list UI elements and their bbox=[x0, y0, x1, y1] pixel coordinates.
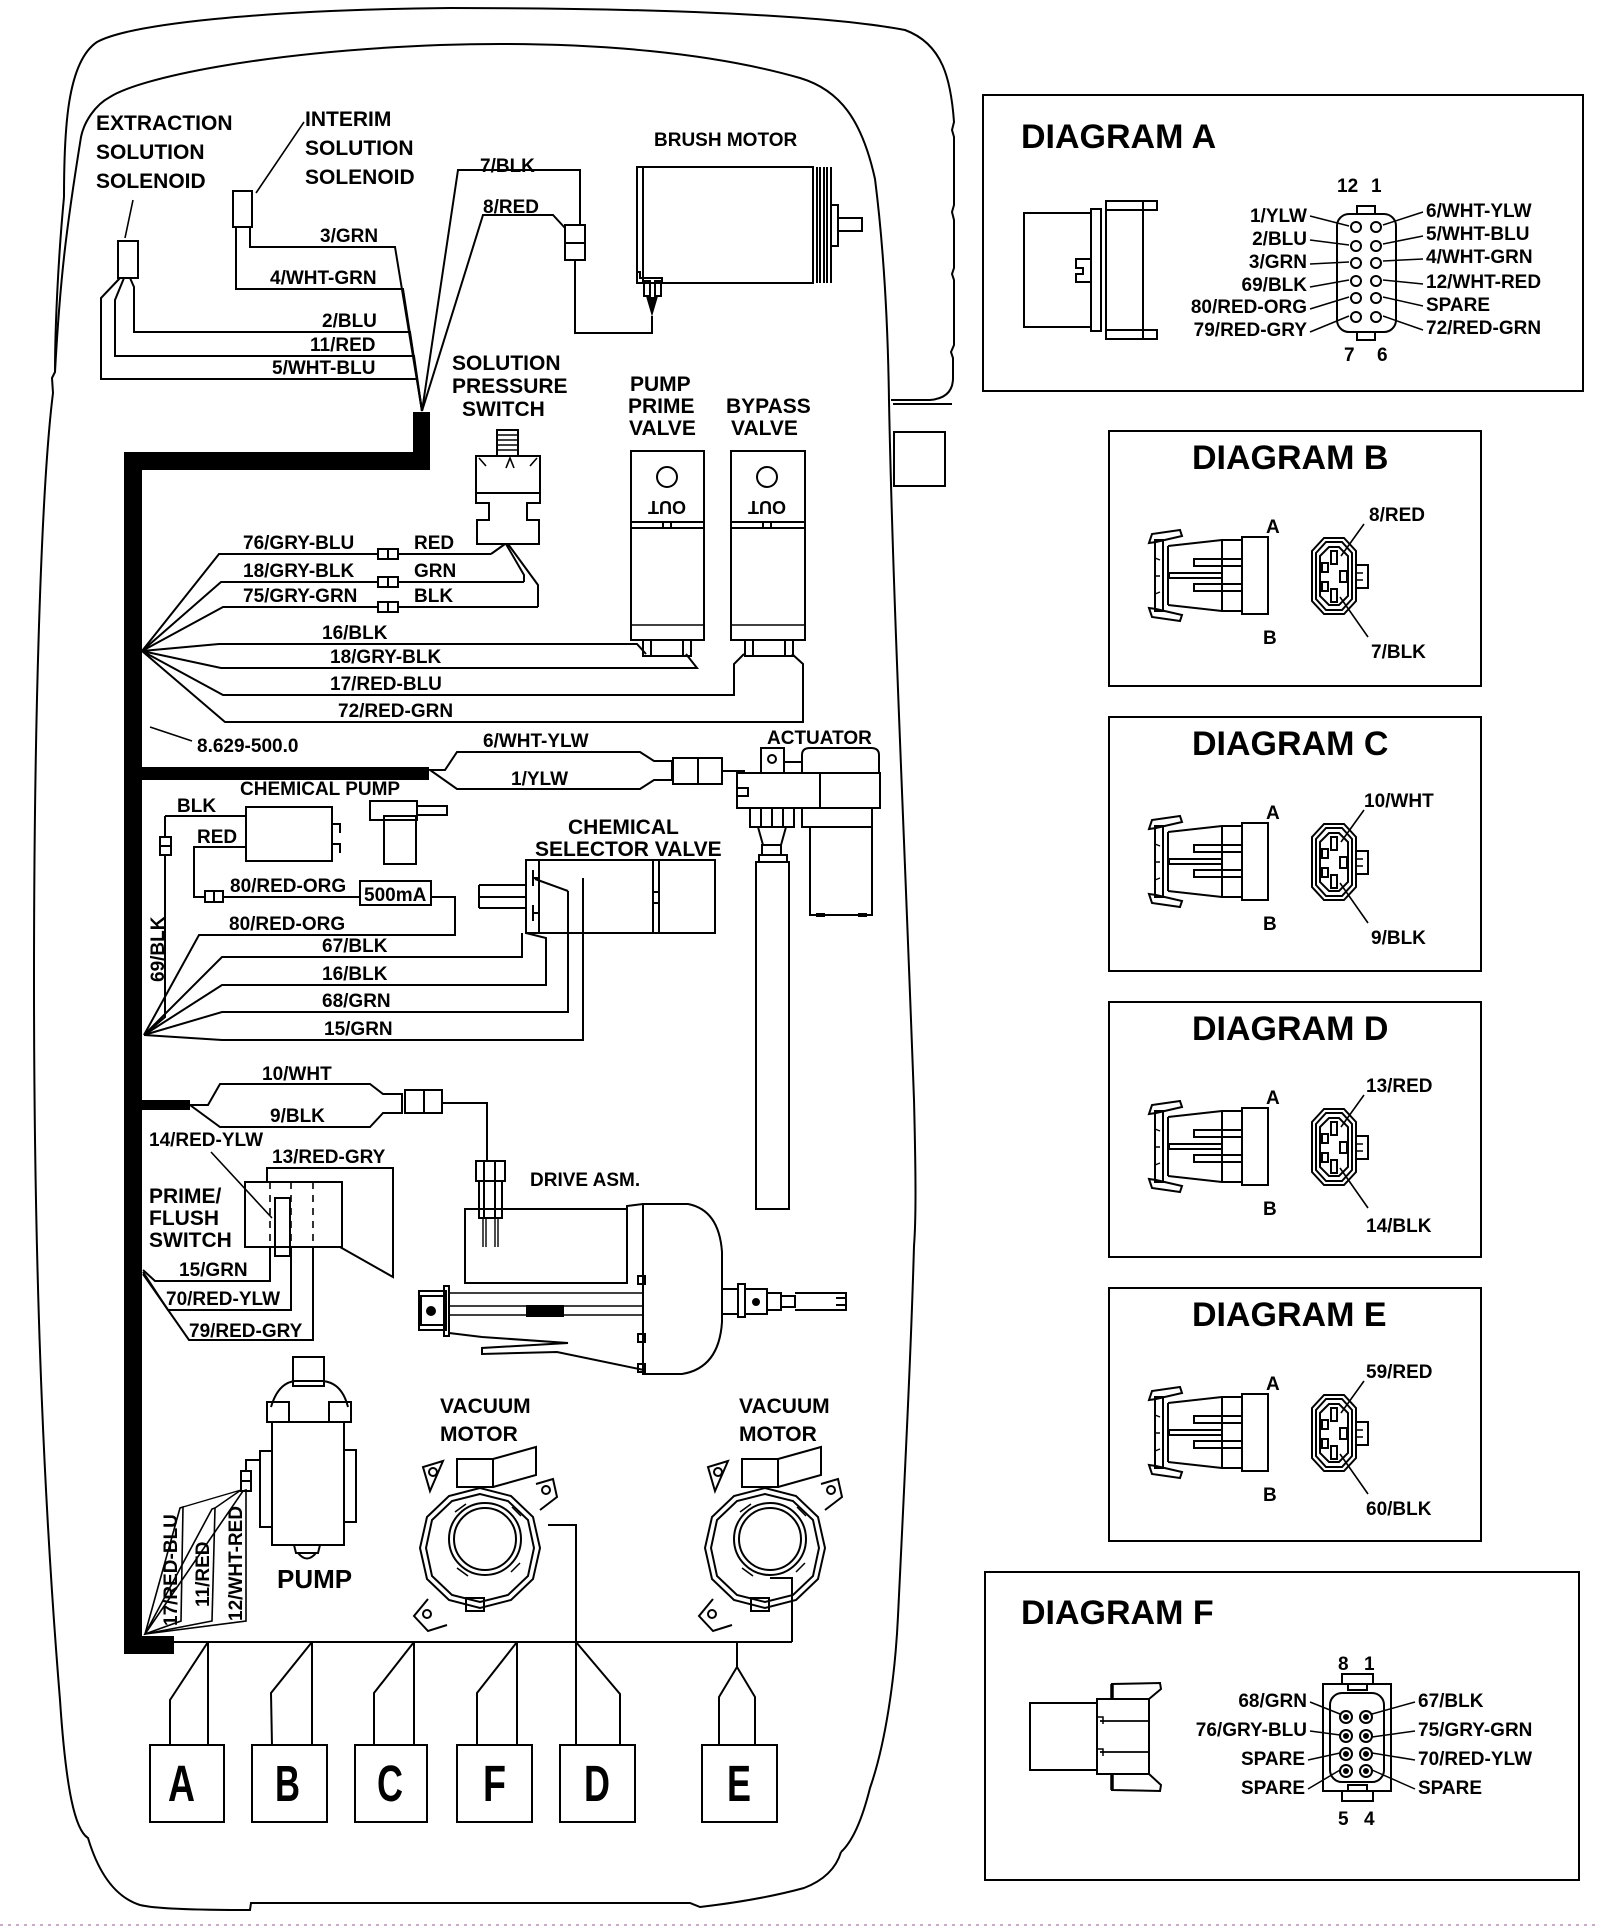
svg-text:DIAGRAM F: DIAGRAM F bbox=[1021, 1594, 1214, 1632]
svg-text:7: 7 bbox=[1344, 345, 1355, 366]
svg-text:E: E bbox=[727, 1755, 751, 1812]
svg-text:B: B bbox=[1263, 1485, 1277, 1506]
svg-text:1/YLW: 1/YLW bbox=[511, 769, 568, 790]
svg-text:B: B bbox=[1263, 628, 1277, 649]
svg-text:SPARE: SPARE bbox=[1418, 1778, 1482, 1799]
svg-text:7/BLK: 7/BLK bbox=[1371, 642, 1426, 663]
svg-text:5: 5 bbox=[1338, 1809, 1349, 1830]
svg-text:VACUUM: VACUUM bbox=[440, 1395, 531, 1418]
svg-text:11/RED: 11/RED bbox=[193, 1542, 214, 1607]
svg-text:14/BLK: 14/BLK bbox=[1366, 1216, 1432, 1237]
svg-text:DIAGRAM A: DIAGRAM A bbox=[1021, 118, 1216, 156]
svg-text:79/RED-GRY: 79/RED-GRY bbox=[189, 1321, 303, 1342]
svg-text:6/WHT-YLW: 6/WHT-YLW bbox=[1426, 201, 1532, 222]
svg-text:18/GRY-BLK: 18/GRY-BLK bbox=[243, 561, 354, 582]
svg-text:BLK: BLK bbox=[177, 796, 216, 817]
svg-text:DIAGRAM D: DIAGRAM D bbox=[1192, 1010, 1388, 1048]
svg-text:69/BLK: 69/BLK bbox=[148, 916, 169, 982]
svg-text:69/BLK: 69/BLK bbox=[1242, 275, 1308, 296]
svg-text:67/BLK: 67/BLK bbox=[322, 936, 388, 957]
svg-text:B: B bbox=[1263, 1199, 1277, 1220]
svg-text:CHEMICAL PUMP: CHEMICAL PUMP bbox=[240, 779, 400, 800]
svg-text:F: F bbox=[483, 1755, 506, 1812]
svg-text:70/RED-YLW: 70/RED-YLW bbox=[166, 1289, 280, 1310]
svg-text:13/RED: 13/RED bbox=[1366, 1076, 1433, 1097]
svg-text:BLK: BLK bbox=[414, 586, 453, 607]
svg-text:10/WHT: 10/WHT bbox=[262, 1064, 332, 1085]
svg-text:RED: RED bbox=[197, 827, 237, 848]
svg-text:OUT: OUT bbox=[648, 497, 686, 517]
svg-text:1: 1 bbox=[1364, 1654, 1375, 1675]
svg-text:59/RED: 59/RED bbox=[1366, 1362, 1433, 1383]
svg-text:10/WHT: 10/WHT bbox=[1364, 791, 1434, 812]
svg-text:SPARE: SPARE bbox=[1241, 1778, 1305, 1799]
svg-text:4/WHT-GRN: 4/WHT-GRN bbox=[1426, 247, 1533, 268]
svg-text:EXTRACTION: EXTRACTION bbox=[96, 112, 233, 135]
svg-text:8/RED: 8/RED bbox=[1369, 505, 1425, 526]
svg-text:SOLENOID: SOLENOID bbox=[305, 166, 415, 189]
svg-text:1/YLW: 1/YLW bbox=[1250, 206, 1307, 227]
svg-text:BRUSH MOTOR: BRUSH MOTOR bbox=[654, 130, 797, 151]
svg-text:18/GRY-BLK: 18/GRY-BLK bbox=[330, 647, 441, 668]
svg-text:17/RED-BLU: 17/RED-BLU bbox=[330, 674, 442, 695]
svg-text:B: B bbox=[275, 1755, 300, 1812]
svg-text:72/RED-GRN: 72/RED-GRN bbox=[1426, 318, 1541, 339]
svg-text:80/RED-ORG: 80/RED-ORG bbox=[1191, 297, 1307, 318]
svg-text:12: 12 bbox=[1337, 176, 1358, 197]
svg-text:MOTOR: MOTOR bbox=[739, 1423, 817, 1446]
svg-text:B: B bbox=[1263, 914, 1277, 935]
svg-text:12/WHT-RED: 12/WHT-RED bbox=[226, 1506, 247, 1621]
svg-text:79/RED-GRY: 79/RED-GRY bbox=[1194, 320, 1308, 341]
svg-text:PRESSURE: PRESSURE bbox=[452, 375, 568, 398]
svg-text:15/GRN: 15/GRN bbox=[179, 1260, 248, 1281]
svg-text:INTERIM: INTERIM bbox=[305, 108, 391, 131]
svg-text:76/GRY-BLU: 76/GRY-BLU bbox=[243, 533, 354, 554]
svg-text:VACUUM: VACUUM bbox=[739, 1395, 830, 1418]
svg-text:PUMP: PUMP bbox=[277, 1564, 352, 1594]
svg-text:A: A bbox=[1266, 517, 1280, 538]
svg-text:2/BLU: 2/BLU bbox=[322, 311, 377, 332]
svg-text:75/GRY-GRN: 75/GRY-GRN bbox=[1418, 1720, 1532, 1741]
svg-text:D: D bbox=[584, 1755, 610, 1812]
svg-text:PRIME: PRIME bbox=[628, 395, 695, 418]
svg-text:14/RED-YLW: 14/RED-YLW bbox=[149, 1130, 263, 1151]
svg-text:9/BLK: 9/BLK bbox=[1371, 928, 1426, 949]
svg-text:16/BLK: 16/BLK bbox=[322, 623, 388, 644]
svg-text:76/GRY-BLU: 76/GRY-BLU bbox=[1196, 1720, 1307, 1741]
svg-text:PRIME/: PRIME/ bbox=[149, 1185, 222, 1208]
svg-text:OUT: OUT bbox=[748, 497, 786, 517]
svg-text:80/RED-ORG: 80/RED-ORG bbox=[230, 876, 346, 897]
svg-text:SOLENOID: SOLENOID bbox=[96, 170, 206, 193]
svg-text:4: 4 bbox=[1364, 1809, 1375, 1830]
svg-text:GRN: GRN bbox=[414, 561, 456, 582]
svg-text:BYPASS: BYPASS bbox=[726, 395, 811, 418]
svg-text:DIAGRAM B: DIAGRAM B bbox=[1192, 439, 1388, 477]
svg-text:60/BLK: 60/BLK bbox=[1366, 1499, 1432, 1520]
svg-text:DRIVE ASM.: DRIVE ASM. bbox=[530, 1170, 640, 1191]
svg-text:A: A bbox=[1266, 803, 1280, 824]
svg-text:13/RED-GRY: 13/RED-GRY bbox=[272, 1147, 386, 1168]
svg-text:6: 6 bbox=[1377, 345, 1388, 366]
svg-text:72/RED-GRN: 72/RED-GRN bbox=[338, 701, 453, 722]
svg-text:SOLUTION: SOLUTION bbox=[452, 352, 561, 375]
svg-text:A: A bbox=[1266, 1374, 1280, 1395]
svg-text:1: 1 bbox=[1371, 176, 1382, 197]
svg-text:5/WHT-BLU: 5/WHT-BLU bbox=[272, 358, 375, 379]
svg-text:68/GRN: 68/GRN bbox=[1238, 1691, 1307, 1712]
svg-text:16/BLK: 16/BLK bbox=[322, 964, 388, 985]
svg-text:SWITCH: SWITCH bbox=[149, 1229, 232, 1252]
svg-text:SPARE: SPARE bbox=[1241, 1749, 1305, 1770]
svg-text:6/WHT-YLW: 6/WHT-YLW bbox=[483, 731, 589, 752]
svg-text:SWITCH: SWITCH bbox=[462, 398, 545, 421]
svg-text:5/WHT-BLU: 5/WHT-BLU bbox=[1426, 224, 1529, 245]
svg-text:SELECTOR VALVE: SELECTOR VALVE bbox=[535, 838, 722, 861]
svg-text:ACTUATOR: ACTUATOR bbox=[767, 728, 872, 749]
svg-text:75/GRY-GRN: 75/GRY-GRN bbox=[243, 586, 357, 607]
svg-text:67/BLK: 67/BLK bbox=[1418, 1691, 1484, 1712]
svg-text:8.629-500.0: 8.629-500.0 bbox=[197, 736, 298, 757]
svg-text:4/WHT-GRN: 4/WHT-GRN bbox=[270, 268, 377, 289]
svg-text:PUMP: PUMP bbox=[630, 373, 691, 396]
svg-text:3/GRN: 3/GRN bbox=[1249, 252, 1307, 273]
svg-text:C: C bbox=[377, 1755, 403, 1812]
svg-text:12/WHT-RED: 12/WHT-RED bbox=[1426, 272, 1541, 293]
svg-text:A: A bbox=[1266, 1088, 1280, 1109]
svg-text:CHEMICAL: CHEMICAL bbox=[568, 816, 679, 839]
svg-text:3/GRN: 3/GRN bbox=[320, 226, 378, 247]
svg-text:11/RED: 11/RED bbox=[310, 335, 375, 356]
svg-text:DIAGRAM C: DIAGRAM C bbox=[1192, 725, 1388, 763]
svg-text:A: A bbox=[168, 1755, 195, 1812]
svg-text:RED: RED bbox=[414, 533, 454, 554]
svg-text:SOLUTION: SOLUTION bbox=[305, 137, 414, 160]
svg-text:FLUSH: FLUSH bbox=[149, 1207, 219, 1230]
svg-text:7/BLK: 7/BLK bbox=[480, 156, 535, 177]
svg-text:70/RED-YLW: 70/RED-YLW bbox=[1418, 1749, 1532, 1770]
svg-text:68/GRN: 68/GRN bbox=[322, 991, 391, 1012]
svg-text:15/GRN: 15/GRN bbox=[324, 1019, 393, 1040]
svg-text:500mA: 500mA bbox=[364, 885, 427, 906]
svg-text:SOLUTION: SOLUTION bbox=[96, 141, 205, 164]
svg-text:VALVE: VALVE bbox=[731, 417, 798, 440]
svg-text:9/BLK: 9/BLK bbox=[270, 1106, 325, 1127]
svg-text:8: 8 bbox=[1338, 1654, 1349, 1675]
svg-text:17/RED-BLU: 17/RED-BLU bbox=[161, 1514, 182, 1626]
svg-text:VALVE: VALVE bbox=[629, 417, 696, 440]
svg-text:2/BLU: 2/BLU bbox=[1252, 229, 1307, 250]
svg-text:MOTOR: MOTOR bbox=[440, 1423, 518, 1446]
svg-text:80/RED-ORG: 80/RED-ORG bbox=[229, 914, 345, 935]
svg-text:DIAGRAM E: DIAGRAM E bbox=[1192, 1296, 1387, 1334]
svg-text:SPARE: SPARE bbox=[1426, 295, 1490, 316]
